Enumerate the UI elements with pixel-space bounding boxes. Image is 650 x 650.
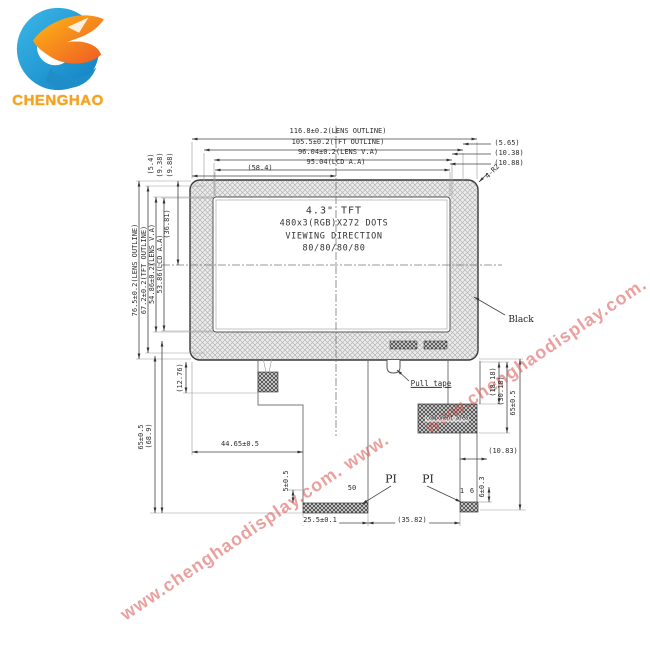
panel-resolution-label: 480x3(RGB)X272 DOTS (280, 219, 389, 228)
dim-left-offset-3: (9.88) (167, 152, 175, 177)
dim-pi-offset-right: 6±0.3 (479, 476, 487, 497)
brand-logo: CHENGHAO (6, 4, 110, 109)
dim-lcd-aa-width: 95.04(LCD A.A) (306, 159, 365, 167)
bezel-color-label: Black (508, 315, 533, 325)
dim-right-offset-1: (5.65) (494, 140, 519, 148)
component-area-label: component area (425, 416, 469, 422)
dim-neck-offset: 44.65±0.5 (221, 441, 259, 449)
dim-component-bottom: (30.18) (498, 376, 506, 406)
dim-right-offset-2: (10.38) (494, 150, 524, 158)
brand-logo-mark (8, 4, 108, 92)
dim-left-offset-2: (9.38) (157, 152, 165, 177)
dim-lens-outline-width: 116.8±0.2(LENS OUTLINE) (290, 128, 387, 136)
brand-name: CHENGHAO (6, 92, 110, 109)
dim-pi-offset-left: 5±0.5 (283, 470, 291, 491)
dim-center-width: (58.4) (247, 165, 272, 173)
drawing-sheet: CHENGHAO www.chenghaodisplay.com. www. w… (0, 0, 650, 650)
pi-stiffener-label-right: PI (422, 473, 434, 486)
dim-left-offset-1: (5.4) (148, 153, 156, 174)
pi-stiffener-right (460, 502, 478, 512)
pin-number-50: 50 (348, 485, 356, 493)
tape-area (258, 372, 278, 392)
dim-component-offset-right: (10.83) (488, 448, 518, 456)
dim-center-height: (36.81) (164, 209, 172, 239)
panel-viewing-angles: 80/80/80/80 (303, 244, 366, 253)
pi-stiffener-label-left: PI (385, 473, 397, 486)
dim-tape-offset: (12.76) (177, 363, 185, 393)
dim-lens-outline-height: 76.5±0.2(LENS OUTLINE) (132, 224, 140, 317)
pin-number-6: 6 (470, 488, 474, 496)
dim-fpc-length-right: 65±0.5 (510, 390, 518, 415)
panel-size-label: 4.3" TFT (306, 206, 362, 217)
dim-fpc-length-left-ref: (68.9) (146, 423, 154, 448)
dim-lens-va-width: 96.04±0.2(LENS V.A) (298, 149, 378, 157)
pin-number-1: 1 (460, 488, 464, 496)
dim-tft-outline-width: 105.5±0.2(TFT OUTLINE) (292, 139, 385, 147)
dim-pi-width: 25.5±0.1 (301, 517, 339, 525)
pi-stiffener-left (303, 503, 368, 513)
panel-viewing-label: VIEWING DIRECTION (285, 232, 382, 241)
dim-pi-gap: (35.82) (395, 517, 429, 525)
dim-lcd-aa-height: 53.86(LCD A.A) (157, 234, 165, 293)
pull-tape-label: Pull tape (411, 380, 452, 388)
